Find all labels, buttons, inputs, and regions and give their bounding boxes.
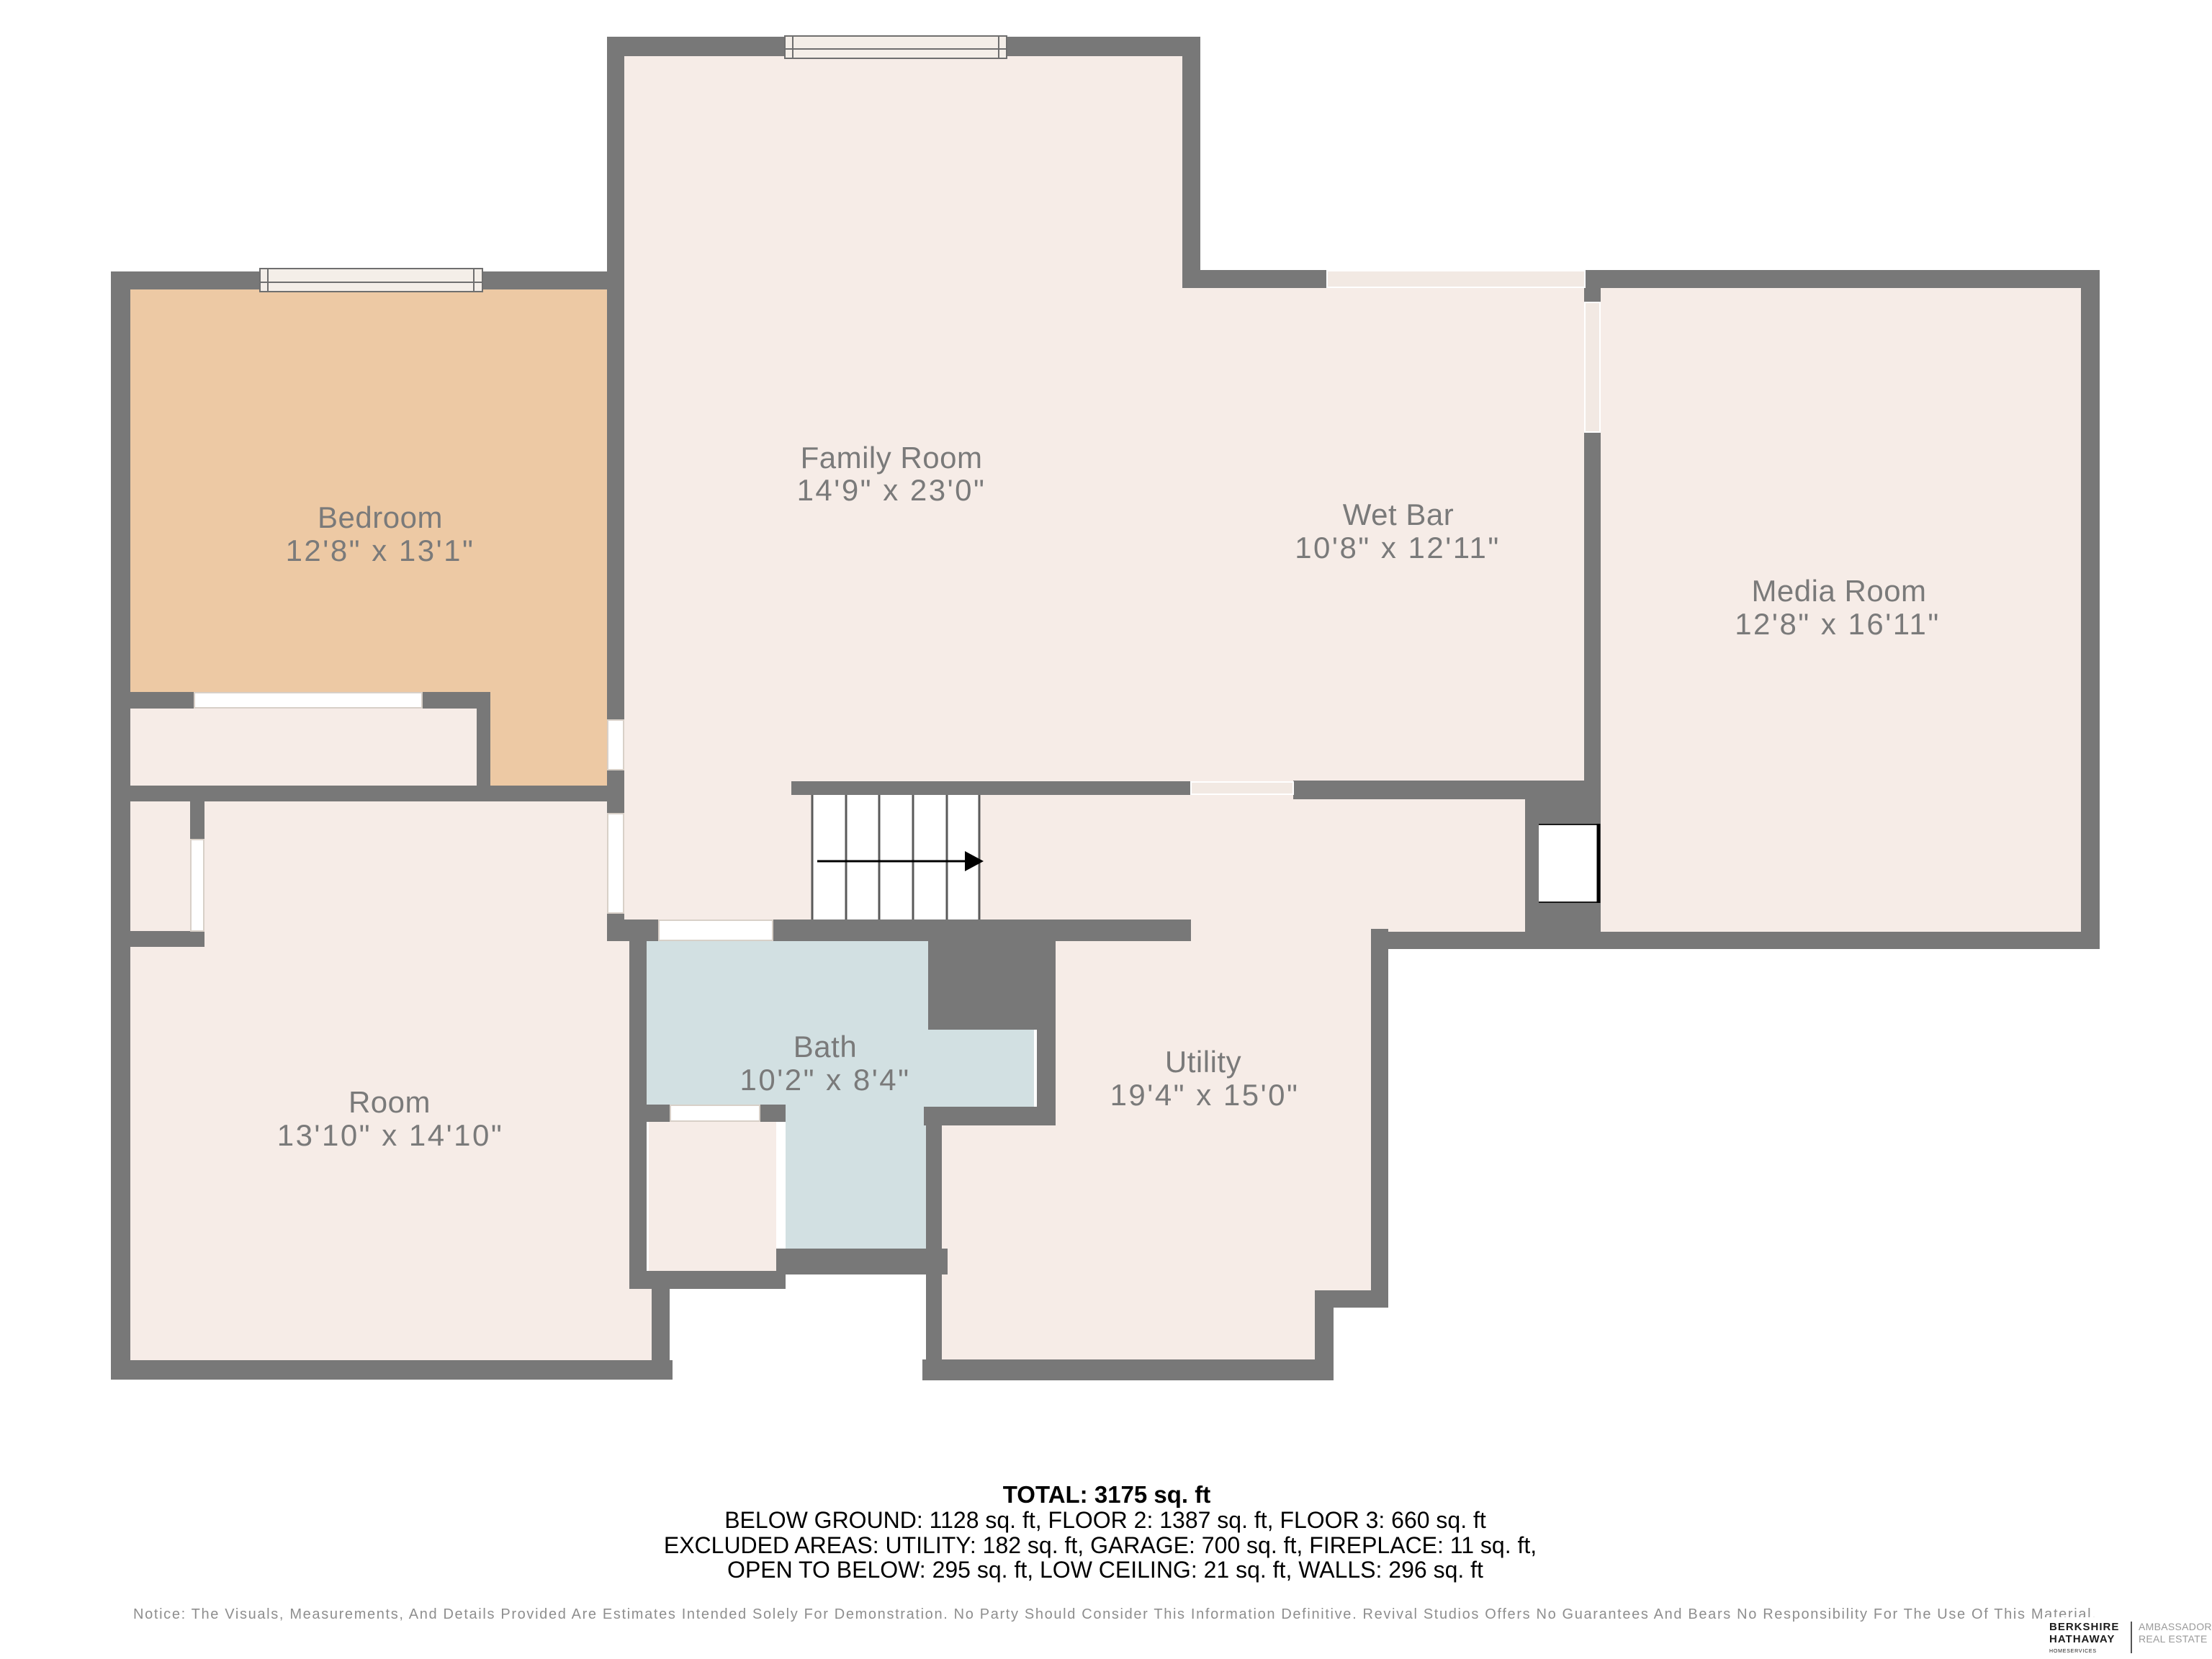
svg-text:REAL ESTATE: REAL ESTATE bbox=[2139, 1633, 2208, 1645]
svg-text:HATHAWAY: HATHAWAY bbox=[2049, 1633, 2115, 1645]
svg-text:12'8" x 13'1": 12'8" x 13'1" bbox=[286, 534, 475, 567]
svg-text:10'8" x 12'11": 10'8" x 12'11" bbox=[1295, 531, 1501, 565]
svg-text:TOTAL: 3175 sq. ft: TOTAL: 3175 sq. ft bbox=[1003, 1481, 1211, 1508]
svg-text:12'8" x 16'11": 12'8" x 16'11" bbox=[1735, 607, 1941, 641]
svg-text:Room: Room bbox=[349, 1085, 431, 1119]
svg-text:13'10" x 14'10": 13'10" x 14'10" bbox=[277, 1118, 504, 1152]
svg-text:Media Room: Media Room bbox=[1751, 574, 1926, 608]
svg-text:Bedroom: Bedroom bbox=[318, 500, 443, 534]
svg-text:OPEN TO BELOW: 295 sq. ft, LOW: OPEN TO BELOW: 295 sq. ft, LOW CEILING: … bbox=[727, 1557, 1483, 1583]
svg-text:Utility: Utility bbox=[1165, 1045, 1241, 1079]
svg-text:Notice: The Visuals, Measureme: Notice: The Visuals, Measurements, And D… bbox=[133, 1606, 2097, 1622]
svg-text:BERKSHIRE: BERKSHIRE bbox=[2049, 1621, 2119, 1633]
svg-text:Bath: Bath bbox=[793, 1030, 857, 1064]
svg-text:10'2" x 8'4": 10'2" x 8'4" bbox=[740, 1063, 911, 1097]
svg-text:19'4" x 15'0": 19'4" x 15'0" bbox=[1110, 1078, 1300, 1112]
svg-text:EXCLUDED AREAS: UTILITY: 182 s: EXCLUDED AREAS: UTILITY: 182 sq. ft, GAR… bbox=[664, 1532, 1537, 1558]
svg-text:HOMESERVICES: HOMESERVICES bbox=[2049, 1649, 2097, 1654]
svg-text:AMBASSADOR: AMBASSADOR bbox=[2139, 1621, 2212, 1632]
svg-text:Wet Bar: Wet Bar bbox=[1343, 498, 1454, 531]
svg-text:14'9" x 23'0": 14'9" x 23'0" bbox=[797, 473, 986, 507]
svg-text:Family Room: Family Room bbox=[801, 441, 983, 475]
svg-text:BELOW GROUND: 1128 sq. ft, FLO: BELOW GROUND: 1128 sq. ft, FLOOR 2: 1387… bbox=[724, 1507, 1486, 1533]
